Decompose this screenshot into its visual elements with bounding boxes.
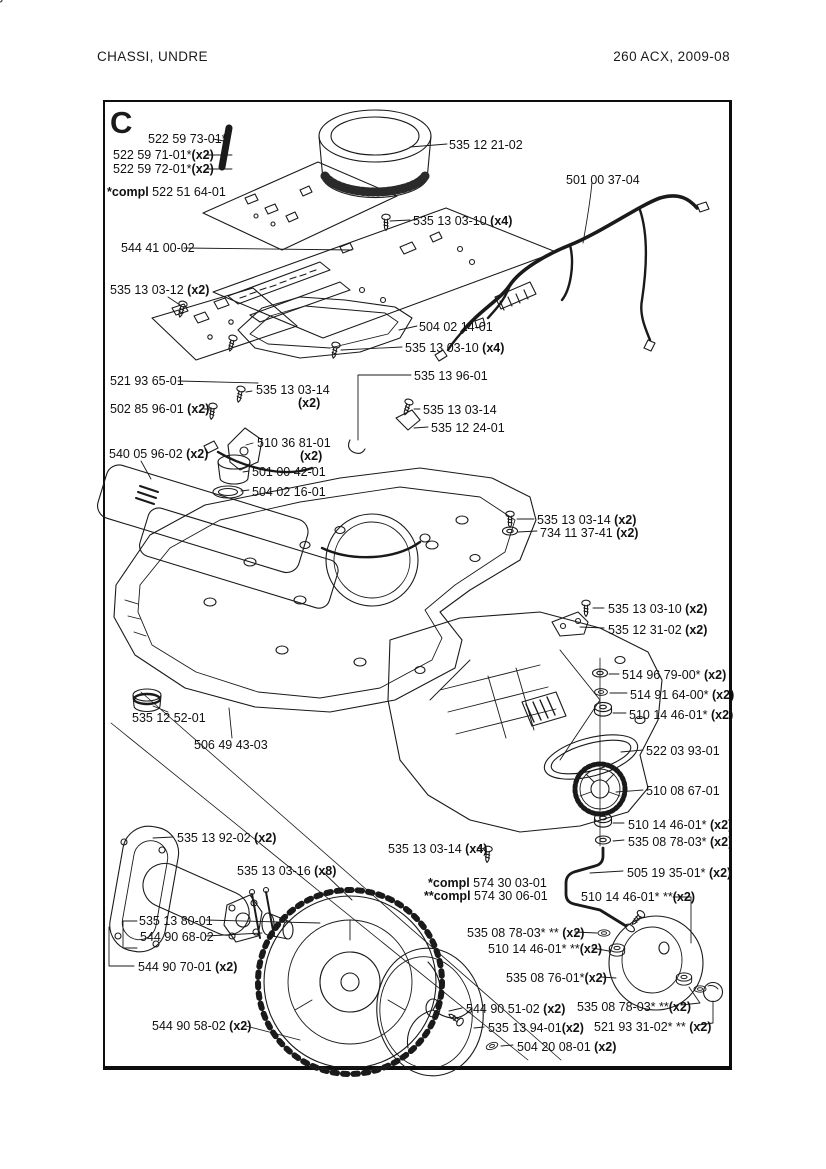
part-label: 535 13 03-10 (x4) [413,215,512,228]
part-label: 535 12 52-01 [132,712,206,725]
part-label: 535 13 96-01 [414,370,488,383]
part-label: 510 14 46-01* (x2) [628,819,732,832]
part-label: 514 96 79-00* (x2) [622,669,726,682]
part-label: 535 12 31-02 (x2) [608,624,707,637]
caster-assembly [598,909,723,1010]
part-label: 535 08 78-03* ** (x2) [467,927,584,940]
part-label: 535 13 03-12 (x2) [110,284,209,297]
part-label: 504 02 14-01 [419,321,493,334]
drive-wheel [258,890,442,1074]
part-label: 504 02 16-01 [252,486,326,499]
part-label: 504 20 08-01 (x2) [517,1041,616,1054]
manual-page: { "page": { "header_left": "CHASSI, UNDR… [0,0,826,1169]
pcb-small [152,288,297,360]
part-label: 521 93 65-01 [110,375,184,388]
part-label: 535 13 92-02 (x2) [177,832,276,845]
part-label: 544 41 00-02 [121,242,195,255]
part-label: 535 13 94-01(x2) [488,1022,584,1035]
part-label: 535 08 78-03* (x2) [628,836,732,849]
part-label: 510 14 46-01* (x2) [629,709,733,722]
part-label: 544 90 70-01 (x2) [138,961,237,974]
part-label: 510 14 46-01* **(x2) [581,891,695,904]
part-label: 506 49 43-03 [194,739,268,752]
part-label: 514 91 64-00* (x2) [630,689,734,702]
part-label: 535 13 80-01 [139,915,213,928]
part-label: 734 11 37-41 (x2) [540,527,638,540]
part-label: 535 12 24-01 [431,422,505,435]
clip-part [396,410,420,430]
part-label: **compl 574 30 06-01 [424,890,548,903]
grommet-part [133,689,161,712]
part-label: 535 13 03-10 (x4) [405,342,504,355]
cable-hook [349,440,365,453]
part-label: 544 90 51-02 (x2) [466,1003,565,1016]
part-label: 522 59 73-01* [148,133,227,146]
part-label: 544 90 58-02 (x2) [152,1020,251,1033]
part-label: 522 03 93-01 [646,745,720,758]
part-label: 535 13 03-10 (x2) [608,603,707,616]
part-label: 535 12 21-02 [449,139,523,152]
seal-ring [213,486,243,498]
part-label: 510 08 67-01 [646,785,720,798]
mid-tray [238,297,412,358]
section-letter: C [110,105,133,141]
part-label: 544 90 68-02 [140,931,214,944]
part-label: 522 59 72-01*(x2) [113,163,214,176]
part-label: 510 14 46-01* **(x2) [488,943,602,956]
part-label: 522 59 71-01*(x2) [113,149,214,162]
part-label: 540 05 96-02 (x2) [109,448,208,461]
part-label: 535 13 03-14 [423,404,497,417]
drum-part [319,110,431,198]
chassis-tray [114,468,536,712]
part-label: 502 85 96-01 (x2) [110,403,209,416]
part-label: 535 08 78-03* **(x2) [577,1001,691,1014]
part-label: 535 08 76-01*(x2) [506,972,607,985]
part-label: *compl 522 51 64-01 [107,186,226,199]
part-label: 535 13 03-14 (x4) [388,843,487,856]
part-label: (x2) [300,450,322,463]
part-label: (x2) [298,397,320,410]
part-label: 505 19 35-01* (x2) [627,867,731,880]
pcb-upper [0,0,397,250]
part-label: 521 93 31-02* ** (x2) [594,1021,711,1034]
part-label: 501 00 37-04 [566,174,640,187]
part-label: 535 13 03-16 (x8) [237,865,336,878]
part-label: 501 00 42-01 [252,466,326,479]
screws [176,214,518,863]
